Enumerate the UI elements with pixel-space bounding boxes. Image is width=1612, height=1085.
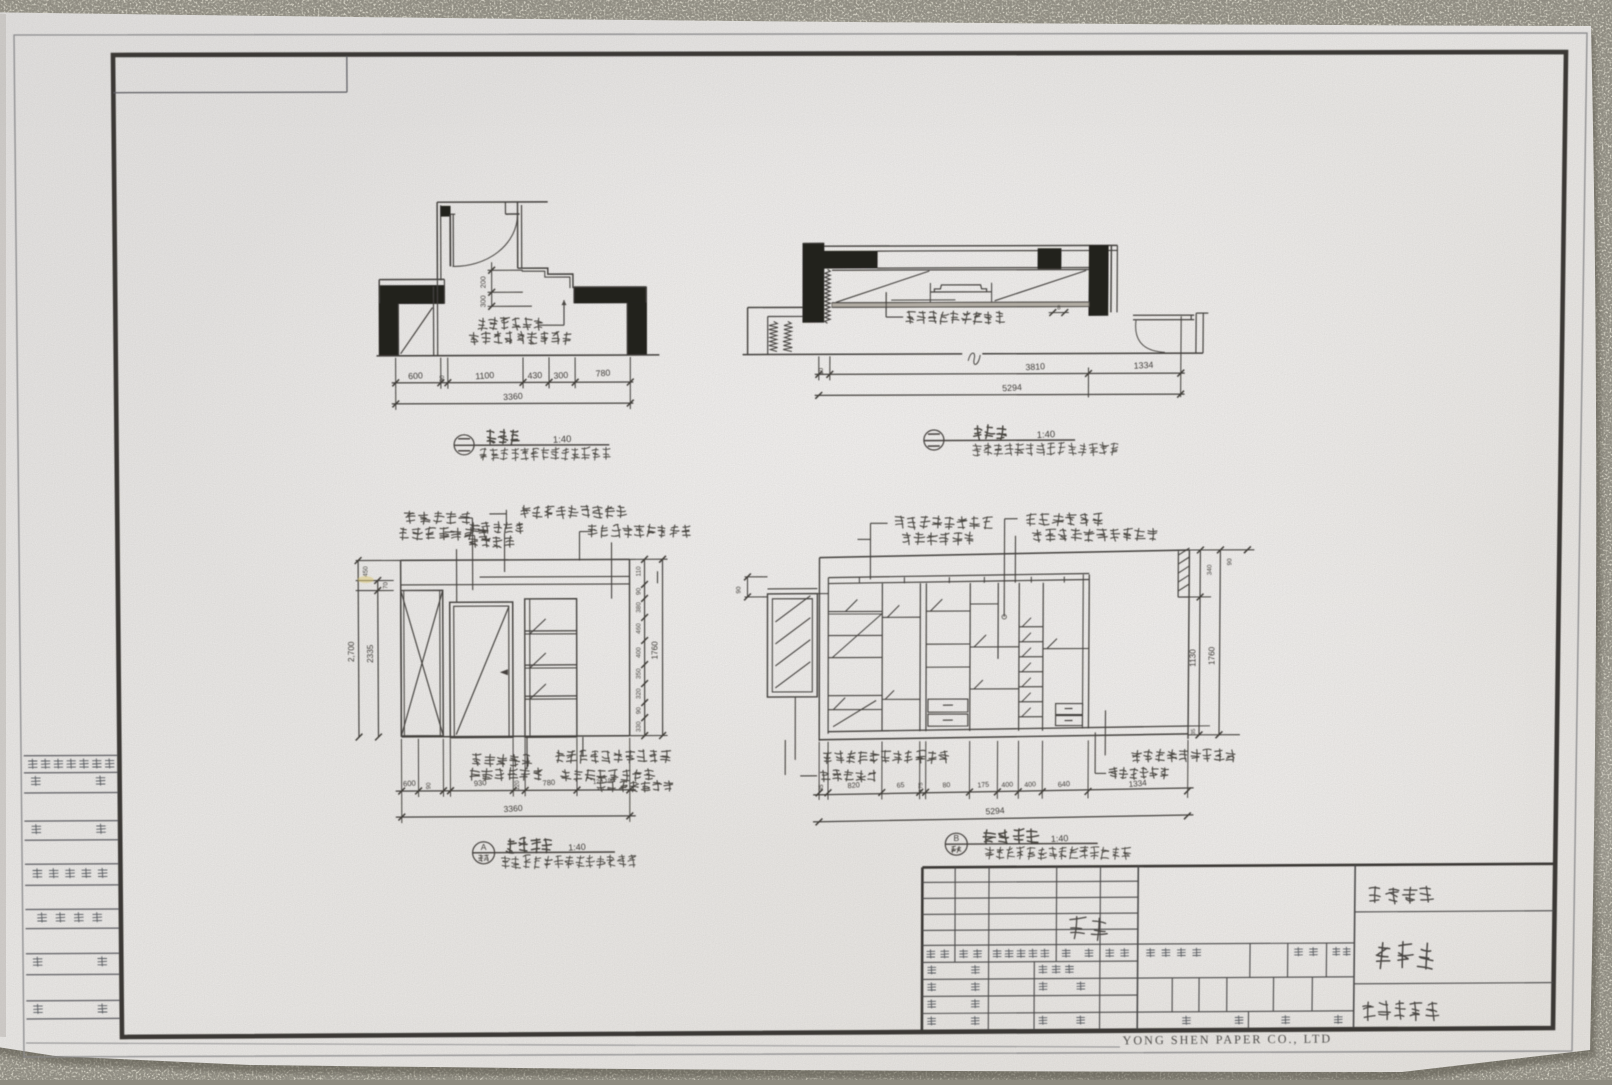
svg-text:430: 430	[527, 370, 542, 381]
svg-text:90: 90	[439, 375, 446, 383]
svg-text:400: 400	[1024, 781, 1036, 789]
svg-text:175: 175	[977, 782, 989, 790]
svg-text:1334: 1334	[1134, 360, 1154, 371]
svg-text:1760: 1760	[651, 641, 660, 660]
svg-text:1:40: 1:40	[568, 842, 586, 853]
svg-text:90: 90	[636, 587, 643, 595]
svg-text:120: 120	[515, 780, 521, 791]
svg-text:70: 70	[383, 582, 390, 589]
svg-text:320: 320	[636, 688, 643, 699]
svg-text:780: 780	[542, 778, 555, 788]
svg-text:640: 640	[1057, 779, 1070, 789]
svg-text:5294: 5294	[985, 805, 1005, 816]
svg-text:1:40: 1:40	[1036, 429, 1055, 441]
svg-text:1100: 1100	[475, 370, 495, 381]
svg-text:3360: 3360	[503, 391, 523, 402]
svg-text:A: A	[481, 842, 487, 852]
svg-text:35: 35	[1191, 729, 1197, 735]
svg-text:2,700: 2,700	[347, 641, 356, 662]
svg-text:600: 600	[408, 370, 423, 381]
svg-text:175: 175	[919, 782, 925, 792]
svg-text:2335: 2335	[366, 644, 375, 663]
svg-text:8: 8	[1057, 305, 1061, 312]
svg-text:200: 200	[479, 276, 488, 288]
svg-text:1760: 1760	[1208, 646, 1217, 665]
svg-text:65: 65	[896, 782, 904, 790]
svg-text:930: 930	[473, 778, 486, 788]
svg-text:780: 780	[595, 368, 610, 379]
svg-text:B: B	[953, 833, 959, 843]
svg-text:3360: 3360	[503, 803, 523, 814]
svg-text:5294: 5294	[1002, 382, 1022, 393]
svg-text:300: 300	[553, 370, 568, 381]
svg-text:80: 80	[942, 782, 950, 790]
svg-text:350: 350	[636, 668, 643, 679]
svg-text:110: 110	[636, 566, 643, 577]
svg-text:400: 400	[636, 647, 643, 658]
svg-text:380: 380	[636, 602, 643, 613]
svg-text:820: 820	[847, 780, 860, 790]
svg-text:450: 450	[363, 566, 370, 577]
svg-text:90: 90	[1226, 558, 1233, 565]
svg-text:90: 90	[427, 782, 433, 789]
svg-text:460: 460	[636, 623, 643, 634]
svg-text:35: 35	[819, 784, 825, 791]
svg-text:340: 340	[1206, 564, 1213, 575]
svg-text:1:40: 1:40	[553, 434, 572, 446]
svg-text:600: 600	[403, 778, 416, 788]
svg-text:1:40: 1:40	[1051, 833, 1069, 844]
svg-text:1130: 1130	[1189, 649, 1198, 667]
svg-text:90: 90	[636, 707, 643, 715]
svg-text:400: 400	[1001, 781, 1013, 789]
svg-text:330: 330	[636, 721, 643, 732]
svg-text:3810: 3810	[1025, 361, 1045, 372]
svg-text:1334: 1334	[1128, 778, 1147, 789]
svg-text:300: 300	[479, 295, 488, 307]
svg-text:10: 10	[818, 367, 825, 374]
svg-text:90: 90	[736, 586, 743, 593]
svg-text:YONG SHEN PAPER CO., LTD: YONG SHEN PAPER CO., LTD	[1122, 1032, 1332, 1048]
